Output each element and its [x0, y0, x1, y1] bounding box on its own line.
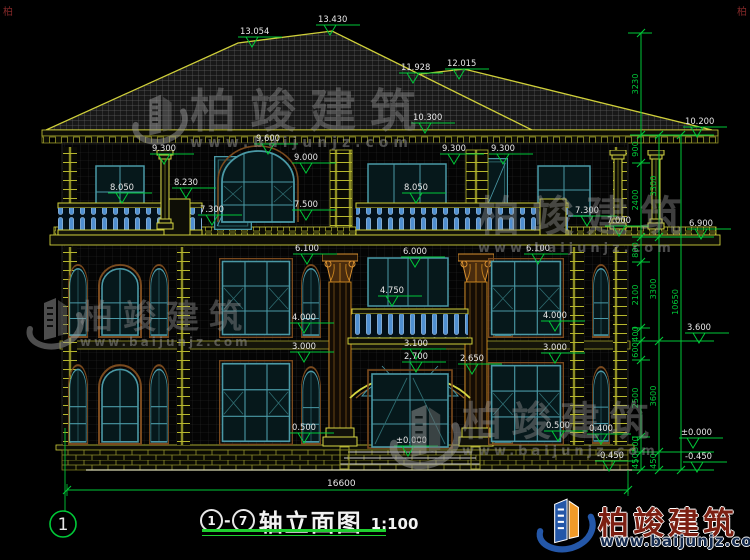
- elevation-value: 9.600: [256, 133, 280, 143]
- dimension-value: 2400: [630, 190, 640, 211]
- elevation-value: -0.450: [597, 450, 624, 460]
- windows-gf-left-wing: [68, 365, 168, 444]
- elevation-value: 10.300: [413, 112, 442, 122]
- elevation-value: 9.300: [152, 143, 176, 153]
- title-text: 轴立面图: [259, 503, 363, 538]
- elevation-value: 7.000: [607, 215, 631, 225]
- title-dash: -: [224, 511, 231, 530]
- elevation-value: 10.200: [685, 116, 714, 126]
- elevation-value: 0.500: [546, 420, 570, 430]
- windows-1f-left-wing: [68, 265, 168, 337]
- elevation-value: 7.300: [575, 205, 599, 215]
- dimension-value: 2100: [630, 285, 640, 306]
- elevation-value: 6.100: [295, 243, 319, 253]
- elevation-value: 2.650: [460, 353, 484, 363]
- dimension-value: 450: [630, 453, 640, 469]
- elevation-value: 4.750: [380, 285, 404, 295]
- elevation-value: 0.500: [292, 422, 316, 432]
- dimension-value: 450: [648, 453, 658, 469]
- dimension-value: 16600: [327, 479, 356, 489]
- elevation-value: ±0.000: [681, 427, 712, 437]
- dimension-value: 3600: [648, 386, 658, 407]
- elevation-value: 3.000: [543, 342, 567, 352]
- window-1f-center: [368, 258, 448, 306]
- elevation-value: 6.900: [689, 218, 713, 228]
- dimension-value: 500: [630, 436, 640, 452]
- elevation-value: 8.050: [404, 182, 428, 192]
- eave-cornice: [42, 130, 718, 143]
- elevation-value: 13.054: [240, 26, 269, 36]
- elevation-value: 4.000: [543, 310, 567, 320]
- elevation-value: 3.000: [292, 341, 316, 351]
- elevation-value: 8.050: [110, 182, 134, 192]
- dimension-value: 3300: [648, 279, 658, 300]
- elevation-value: 7.300: [200, 204, 224, 214]
- elevation-value: 6.000: [403, 246, 427, 256]
- elevation-value: 4.000: [292, 312, 316, 322]
- elevation-value: ±0.000: [396, 435, 427, 445]
- title-underline: [202, 529, 386, 532]
- dimension-value: 600: [630, 342, 640, 358]
- window-1f-center-left: [220, 259, 293, 338]
- dimension-value: 3230: [630, 74, 640, 95]
- axis-number: 1: [58, 515, 69, 535]
- dimension-value: 3300: [648, 176, 658, 197]
- elevation-value: 12.015: [447, 58, 476, 68]
- balustrade-2f-left: [58, 199, 202, 235]
- dimension-value: 10650: [670, 289, 680, 315]
- elevation-value: -0.450: [685, 451, 712, 461]
- dimension-value: 900: [630, 141, 640, 157]
- window-1f-flank-left: [301, 265, 320, 337]
- dimension-value: 2500: [630, 388, 640, 409]
- elevation-value: 6.100: [526, 243, 550, 253]
- elevation-value: 13.430: [318, 14, 347, 24]
- dimension-value: 800: [630, 242, 640, 258]
- elevation-value: 9.300: [491, 143, 515, 153]
- elevation-value: 8.230: [174, 177, 198, 187]
- window-gf-flank-left: [301, 367, 320, 444]
- elevation-value: 9.000: [294, 152, 318, 162]
- balustrade-2f-right: [356, 199, 568, 235]
- elevation-value: 3.600: [687, 322, 711, 332]
- drawing-title: 1 - 7 轴立面图 1:100: [200, 503, 418, 538]
- window-1f-right-narrow: [592, 265, 609, 337]
- elevation-value: 0.400: [589, 423, 613, 433]
- elevation-value: 7.500: [294, 199, 318, 209]
- balcony-pedestal: [540, 199, 566, 235]
- elevation-value: 11.928: [401, 62, 430, 72]
- title-underline: [202, 535, 386, 536]
- elevation-value: 2.700: [404, 351, 428, 361]
- elevation-value: 3.100: [404, 338, 428, 348]
- window-gf-center-left: [220, 361, 293, 445]
- elevation-value: 9.300: [442, 143, 466, 153]
- dimension-value: 400: [630, 326, 640, 342]
- elevation-drawing: 13.05413.43011.92812.01510.3009.3009.600…: [0, 0, 750, 560]
